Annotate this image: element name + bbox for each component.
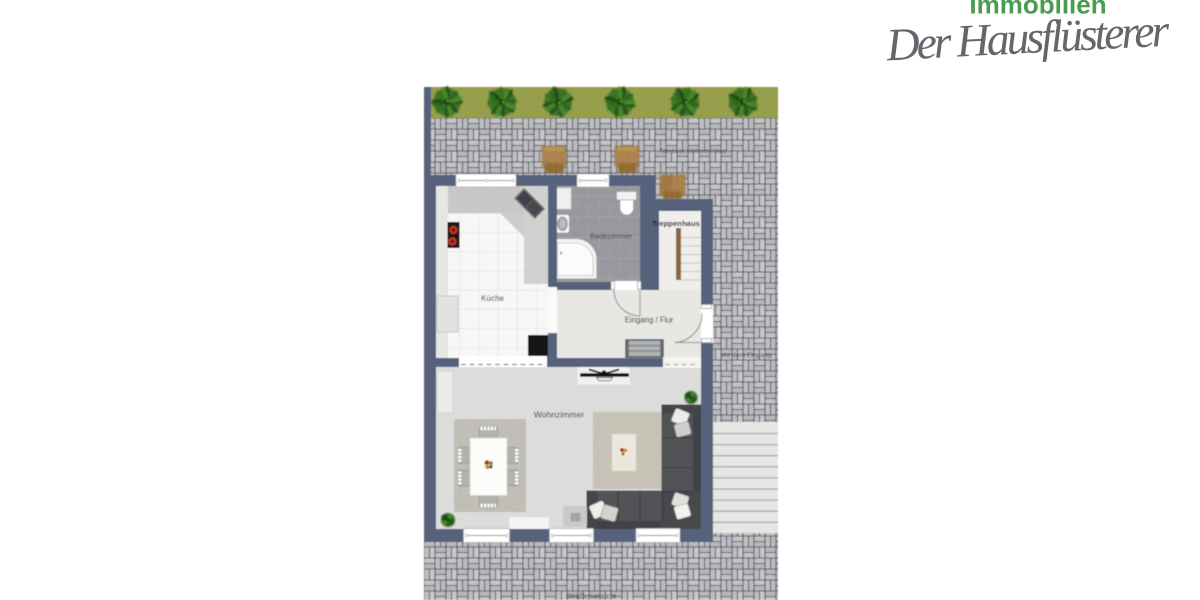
svg-text:Wohnzimmer: Wohnzimmer	[534, 410, 585, 420]
svg-text:Straßenansicht: Straßenansicht	[566, 592, 617, 600]
svg-text:Vor dem Eingang: Vor dem Eingang	[720, 352, 772, 359]
svg-text:Eingang / Flur: Eingang / Flur	[625, 316, 674, 325]
svg-text:Terrasse hinterm Haus: Terrasse hinterm Haus	[659, 148, 727, 155]
svg-text:Treppenhaus: Treppenhaus	[652, 219, 700, 228]
svg-text:Küche: Küche	[481, 294, 504, 303]
svg-text:Badezimmer: Badezimmer	[590, 232, 633, 241]
